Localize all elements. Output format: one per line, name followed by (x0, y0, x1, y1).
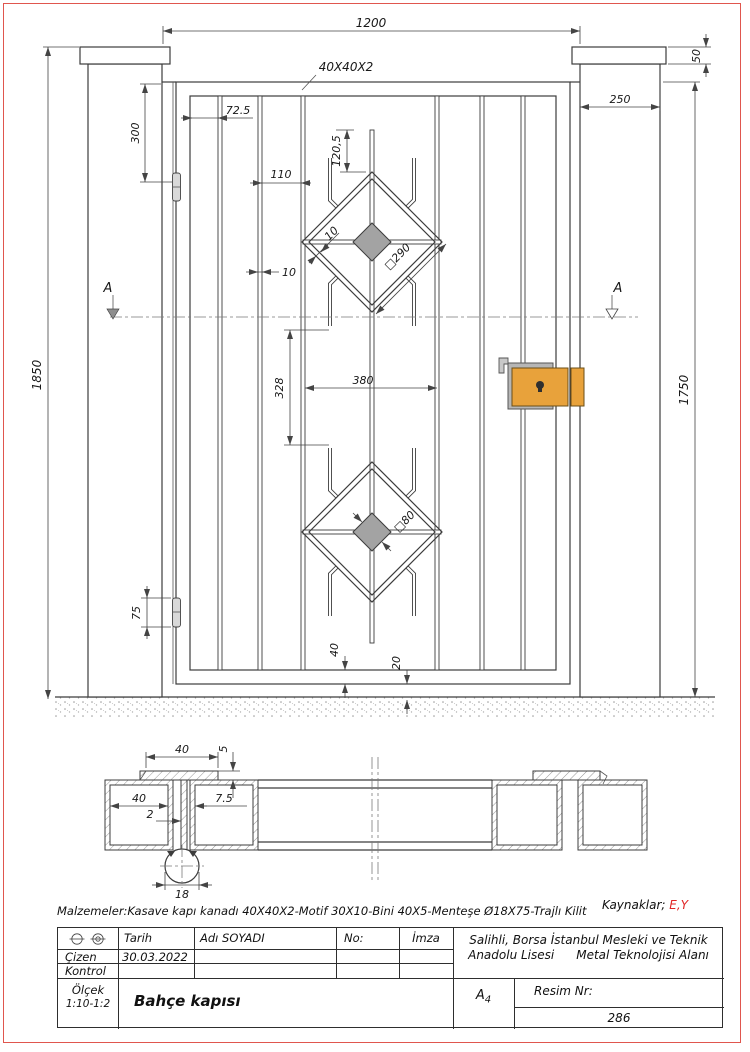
left-post-cap (80, 47, 170, 64)
dim-arrow (382, 542, 391, 551)
control-label: Kontrol (65, 964, 106, 978)
dim-hinge-diameter: 18 (175, 888, 189, 901)
dim-hinge-length: 75 (130, 606, 143, 620)
section-label-right: A (613, 281, 623, 296)
dim-bini-width: 40 (175, 743, 189, 756)
section-tube-3-bore (497, 785, 557, 845)
ground-hatch (55, 697, 715, 717)
keyhole-slot (538, 385, 542, 392)
bottom-hinge (173, 598, 181, 627)
sources-label: Kaynaklar; (602, 898, 665, 912)
section-view: 40 5 40 2 7.5 18 (105, 743, 647, 901)
school-name-line1: Salihli, Borsa İstanbul Mesleki ve Tekni… (453, 933, 724, 947)
scale-label: Ölçek (58, 983, 118, 997)
dim-spoke-length: 120,5 (330, 135, 343, 167)
section-label-left: A (103, 281, 113, 296)
dim-gap: 7.5 (215, 792, 233, 805)
scale-value: 1:10-1:2 (58, 998, 118, 1010)
drawing-title: Bahçe kapısı (134, 992, 241, 1010)
name-label: Adı SOYADI (200, 931, 265, 945)
school-name-line2: Anadolu Lisesi Metal Teknolojisi Alanı (453, 948, 724, 962)
drawn-label: Çizen (65, 950, 97, 964)
right-post (580, 64, 660, 697)
title-block: Tarih Adı SOYADI No: İmza Çizen 30.03.20… (57, 927, 723, 1028)
sources-value: E,Y (669, 898, 688, 912)
school-line2-right: Metal Teknolojisi Alanı (576, 948, 709, 962)
paper-size: A4 (453, 988, 514, 1006)
dim-motif-width: 380 (353, 374, 374, 387)
hinges (173, 173, 182, 627)
dim-bar-thickness: 10 (282, 266, 296, 279)
dim-bottom-rail: 40 (328, 643, 341, 657)
no-label: No: (344, 931, 364, 945)
technical-drawing: A A 1200 40X40X2 50 2 (0, 0, 750, 902)
dim-arrow (321, 245, 328, 252)
motif1-center-square (353, 223, 391, 261)
section-bini-1 (140, 771, 218, 780)
dim-top-offset: 300 (129, 123, 142, 144)
tb-hline (58, 963, 453, 964)
section-divider (181, 780, 187, 850)
profile-label: 40X40X2 (319, 60, 374, 74)
bar (435, 96, 439, 670)
lock-keeper (571, 368, 584, 406)
dim-post-width: 250 (610, 93, 631, 106)
bar (258, 96, 262, 670)
dim-tube-width: 40 (132, 792, 146, 805)
lock-assembly (499, 358, 584, 409)
tb-hline (514, 1007, 724, 1008)
dim-opening-width: 1200 (356, 16, 387, 30)
school-line2-left: Anadolu Lisesi (468, 948, 554, 962)
drawing-no-label: Resim Nr: (534, 984, 593, 998)
dim-cap-height: 50 (690, 49, 703, 63)
drawn-date: 30.03.2022 (122, 950, 188, 964)
bar (218, 96, 222, 670)
tb-vline (336, 928, 337, 978)
dim-ground-gap: 20 (390, 656, 403, 670)
dim-bini-thickness: 5 (217, 746, 230, 753)
drawing-no-value: 286 (514, 1011, 724, 1025)
signature-label: İmza (399, 931, 453, 945)
dim-wall-thickness: 2 (147, 808, 154, 821)
sources-note: Kaynaklar; E,Y (602, 898, 688, 912)
dim-bar-spacing: 110 (271, 168, 292, 181)
paper-size-index: 4 (485, 995, 491, 1006)
bar (480, 96, 484, 670)
tb-hline (58, 949, 453, 950)
dim-overall-height: 1850 (30, 359, 44, 390)
tb-hline (58, 978, 724, 979)
bar (301, 96, 305, 670)
tb-vline (194, 928, 195, 978)
materials-note: Malzemeler:Kasave kapı kanadı 40X40X2-Mo… (57, 904, 617, 918)
dim-motif-offset: 328 (273, 378, 286, 399)
section-rails (258, 757, 492, 880)
dim-first-bar: 72.5 (226, 104, 251, 117)
front-view: A A 1200 40X40X2 50 2 (30, 16, 715, 717)
dim-arrow (353, 513, 362, 522)
paper-size-letter: A (476, 988, 485, 1003)
section-tube-4-bore (583, 785, 642, 845)
left-post (88, 64, 162, 697)
section-bini-2 (533, 771, 600, 780)
right-post-cap (572, 47, 666, 64)
drawing-sheet: { "front_view": { "dims": { "opening_wid… (0, 0, 750, 1052)
lock-hook (499, 358, 508, 373)
dim-arrow (309, 256, 316, 263)
date-label: Tarih (124, 931, 152, 945)
dim-leaf-height: 1750 (677, 374, 691, 405)
